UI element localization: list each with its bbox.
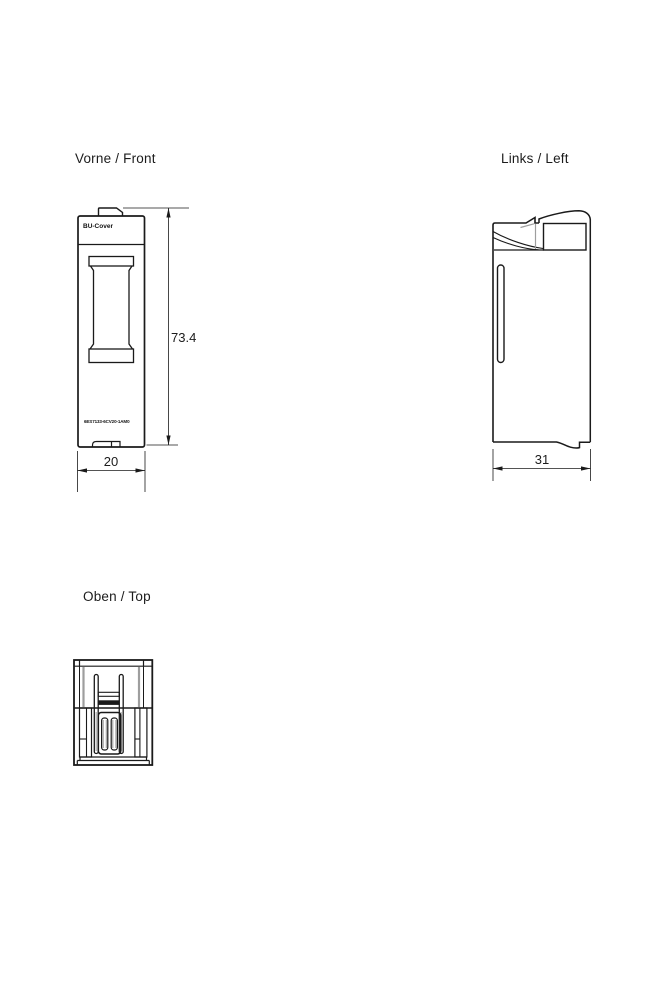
dim-height-value: 73.4 [171,330,196,345]
dim-width-value: 20 [85,454,137,469]
top-view-title: Oben / Top [83,589,151,604]
dim-depth-value: 31 [516,452,568,467]
module-product-label: BU-Cover [83,223,113,230]
drawing-canvas [0,0,662,1000]
top-view-drawing [74,660,152,765]
left-view-title: Links / Left [501,151,569,166]
module-article-number: 6ES7133-6CV20-1AM0 [84,419,129,424]
left-view-drawing [493,211,590,448]
front-view-title: Vorne / Front [75,151,156,166]
front-view-drawing [78,208,145,447]
technical-drawing-page: Vorne / Front Links / Left Oben / Top BU… [0,0,662,1000]
